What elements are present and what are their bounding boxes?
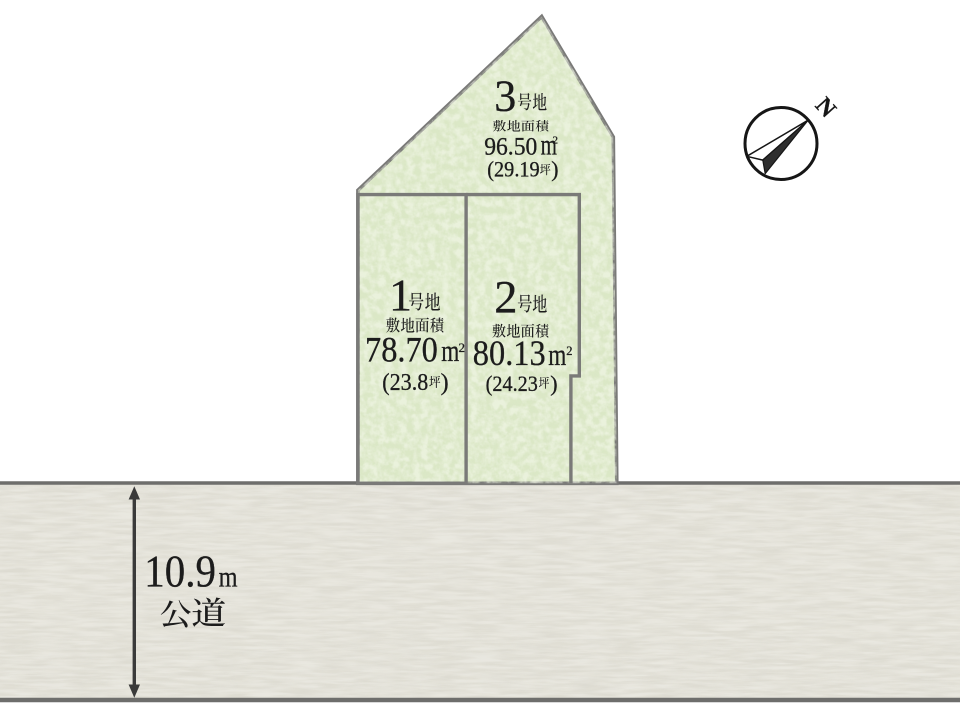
svg-text:2: 2 (459, 340, 466, 355)
svg-text:m: m (441, 334, 459, 368)
svg-text:2: 2 (553, 134, 559, 146)
svg-text:m: m (548, 338, 566, 372)
svg-text:(23.8: (23.8 (382, 368, 428, 395)
svg-text:(24.23: (24.23 (486, 371, 538, 396)
svg-text:1: 1 (389, 270, 412, 321)
svg-text:78.70: 78.70 (365, 330, 438, 370)
svg-text:80.13: 80.13 (473, 333, 546, 373)
svg-text:): ) (550, 371, 557, 396)
svg-text:2: 2 (494, 273, 517, 324)
svg-text:N: N (810, 93, 841, 124)
svg-text:): ) (441, 370, 449, 396)
svg-text:10.9: 10.9 (144, 547, 216, 597)
svg-text:2: 2 (566, 344, 572, 358)
svg-text:m: m (219, 560, 238, 593)
svg-text:): ) (551, 157, 558, 181)
svg-text:3: 3 (494, 72, 516, 121)
svg-text:(29.19: (29.19 (487, 157, 539, 182)
